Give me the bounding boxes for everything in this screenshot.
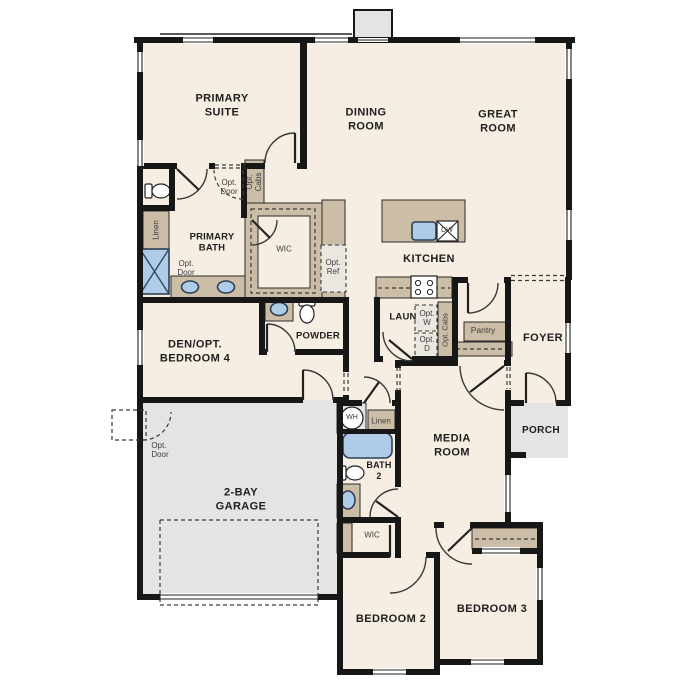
- window: [504, 475, 512, 512]
- floor-plan: PRIMARY SUITE DINING ROOM GREAT ROOM PRI…: [0, 0, 687, 687]
- label-dishwasher: DW: [441, 227, 453, 235]
- label-garage: 2-BAY GARAGE: [216, 486, 267, 514]
- label-media-room: MEDIA ROOM: [433, 432, 470, 460]
- window: [565, 210, 573, 240]
- label-opt-cabs-laundry: Opt. Cabs: [442, 313, 451, 347]
- label-great-room: GREAT ROOM: [478, 108, 518, 136]
- label-wic-primary: WIC: [276, 244, 292, 253]
- window: [373, 668, 406, 676]
- window: [536, 568, 544, 600]
- label-primary-suite: PRIMARY SUITE: [195, 92, 248, 120]
- floor-plan-drawing: [0, 0, 687, 687]
- label-bedroom2: BEDROOM 2: [356, 613, 426, 627]
- label-primary-bath: PRIMARY BATH: [190, 232, 235, 255]
- primary-sink-2: [218, 281, 235, 293]
- pantry-band: [454, 342, 512, 356]
- chimney: [354, 10, 392, 40]
- label-wic-bed2: WIC: [364, 530, 380, 539]
- label-foyer: FOYER: [523, 332, 563, 346]
- label-opt-door-garage: Opt. Door: [151, 441, 168, 459]
- range: [411, 276, 437, 298]
- label-powder: POWDER: [296, 330, 340, 341]
- label-opt-cabs-dining: Opt. Cabs: [245, 173, 263, 192]
- label-dining-room: DINING ROOM: [346, 106, 387, 134]
- label-den: DEN/OPT. BEDROOM 4: [160, 338, 230, 366]
- window: [471, 658, 504, 666]
- label-porch: PORCH: [522, 425, 560, 438]
- shower-icon: [140, 249, 169, 294]
- primary-sink-1: [182, 281, 199, 293]
- window: [136, 52, 144, 72]
- label-opt-door-bath-entry: Opt. Door: [220, 178, 237, 196]
- window: [136, 140, 144, 166]
- label-opt-ref: Opt. Ref: [325, 258, 340, 276]
- label-laundry: LAUN: [389, 311, 416, 322]
- label-opt-door-shower: Opt. Door: [177, 259, 194, 277]
- label-kitchen: KITCHEN: [403, 253, 455, 267]
- island-sink: [412, 222, 436, 240]
- window: [564, 323, 572, 353]
- garage-door: [160, 593, 318, 605]
- toilet-icon-primary: [145, 184, 170, 198]
- label-linen-primary: Linen: [151, 220, 160, 240]
- label-bath2: BATH 2: [366, 460, 391, 482]
- window: [460, 36, 535, 44]
- label-water-heater: WH: [346, 414, 358, 422]
- powder-sink: [271, 303, 288, 316]
- label-opt-dryer: Opt. D: [419, 335, 434, 353]
- label-linen-bath2: Linen: [371, 416, 391, 425]
- bath2-sink: [341, 491, 355, 509]
- closet-bypass-doors: [482, 547, 520, 555]
- label-bedroom3: BEDROOM 3: [457, 603, 527, 617]
- label-pantry: Pantry: [471, 326, 496, 336]
- window: [183, 36, 213, 44]
- window: [315, 36, 348, 44]
- label-opt-washer: Opt. W: [419, 309, 434, 327]
- bathtub-icon: [343, 433, 392, 458]
- window: [136, 330, 144, 365]
- window: [565, 49, 573, 79]
